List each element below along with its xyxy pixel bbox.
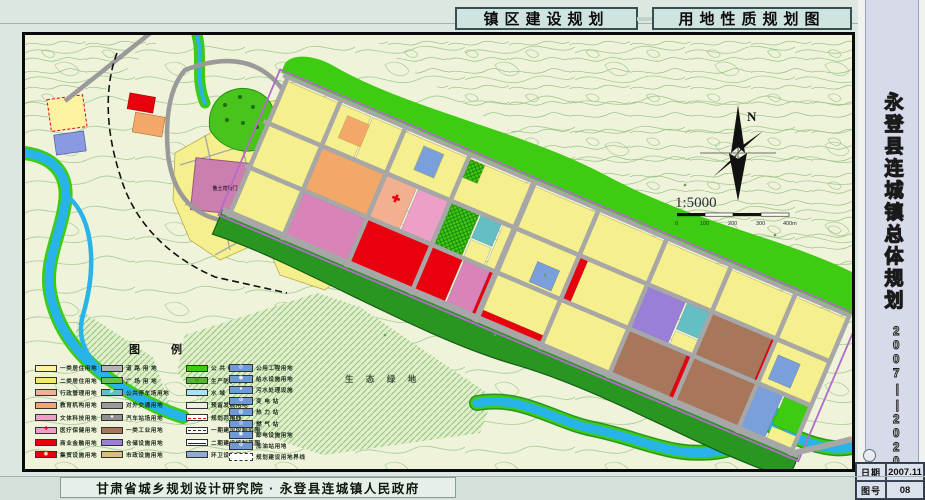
scale-tick: 300 bbox=[756, 221, 765, 227]
title-box-plan: 镇区建设规划 bbox=[455, 7, 638, 30]
legend-label: 热 力 站 bbox=[256, 408, 279, 416]
legend-label: 加油站用地 bbox=[256, 442, 287, 450]
legend-label: 公共停车场用地 bbox=[126, 389, 169, 397]
legend-item: ⊙加油站用地 bbox=[229, 440, 306, 451]
legend-swatch bbox=[35, 414, 57, 421]
legend-label: 仓储设施用地 bbox=[126, 439, 163, 447]
legend-swatch bbox=[101, 439, 123, 446]
legend-swatch: ◎ bbox=[186, 377, 208, 384]
legend-item: ◉集贸设施用地 bbox=[35, 449, 97, 461]
sheet-label: 图号 bbox=[856, 481, 886, 499]
legend-label: 燃 气 站 bbox=[256, 420, 279, 428]
legend-swatch: ● bbox=[229, 386, 253, 394]
legend-label: 邮电设施用地 bbox=[256, 431, 293, 439]
legend-item: ◎公用工程用地 bbox=[229, 362, 306, 373]
legend-item: 二类居住用地 bbox=[35, 374, 97, 386]
legend-swatch: ⊙ bbox=[229, 397, 253, 405]
legend-swatch bbox=[186, 402, 208, 409]
legend-label: 变 电 站 bbox=[256, 397, 279, 405]
legend-title: 图 例 bbox=[129, 341, 196, 357]
legend-label: 道 路 用 地 bbox=[126, 364, 157, 372]
legend-swatch bbox=[186, 427, 208, 434]
legend-swatch bbox=[186, 451, 208, 458]
legend-label: 教育机构用地 bbox=[60, 401, 97, 409]
sheet-value: 08 bbox=[886, 481, 924, 499]
legend-swatch bbox=[101, 427, 123, 434]
legend-label: 对外交通用地 bbox=[126, 401, 163, 409]
legend-item: 道 路 用 地 bbox=[101, 362, 169, 374]
legend-swatch: ◎ bbox=[229, 420, 253, 428]
info-table: 日期 2007.11 图号 08 bbox=[855, 462, 925, 500]
legend-item: 教育机构用地 bbox=[35, 399, 97, 411]
legend-label: 广 场 用 地 bbox=[126, 377, 157, 385]
legend-item: ✚医疗保健用地 bbox=[35, 424, 97, 436]
legend-item: 对外交通用地 bbox=[101, 399, 169, 411]
legend-item: 一类居住用地 bbox=[35, 362, 97, 374]
sidebar-band: 永登县连城镇总体规划 2007∣∣2020 bbox=[865, 0, 919, 462]
heritage-label: 鲁土司衙门 bbox=[212, 185, 237, 192]
legend-swatch: ✚ bbox=[35, 427, 57, 434]
scale-tick: 400m bbox=[783, 221, 797, 227]
sidebar: 永登县连城镇总体规划 2007∣∣2020 bbox=[858, 0, 925, 462]
legend-item: ◉邮电设施用地 bbox=[229, 429, 306, 440]
legend-swatch bbox=[35, 439, 57, 446]
footer-strip: 甘肃省城乡规划设计研究院 · 永登县连城镇人民政府 bbox=[0, 477, 855, 500]
legend-swatch bbox=[101, 402, 123, 409]
legend-label: 二类居住用地 bbox=[60, 377, 97, 385]
legend-swatch: ◉ bbox=[229, 431, 253, 439]
legend-label: 汽车站场用地 bbox=[126, 414, 163, 422]
legend-item: 商业金融用地 bbox=[35, 436, 97, 448]
legend-swatch bbox=[186, 365, 208, 372]
title-connector bbox=[637, 17, 653, 21]
legend-item: ●污水处理设施 bbox=[229, 384, 306, 395]
legend-swatch: ◉ bbox=[229, 375, 253, 383]
legend-column-1: 一类居住用地二类居住用地行政管理用地教育机构用地文体科技用地✚医疗保健用地商业金… bbox=[35, 362, 97, 461]
legend-item: 文体科技用地 bbox=[35, 412, 97, 424]
credit-box: 甘肃省城乡规划设计研究院 · 永登县连城镇人民政府 bbox=[60, 477, 456, 498]
scale-tick: 0 bbox=[675, 221, 678, 227]
legend-item: P公共停车场用地 bbox=[101, 387, 169, 399]
legend-swatch bbox=[101, 365, 123, 372]
map-canvas: 鲁土司衙门 bbox=[22, 32, 855, 472]
legend-item: ⊙变 电 站 bbox=[229, 396, 306, 407]
legend-item: 行政管理用地 bbox=[35, 387, 97, 399]
legend-swatch bbox=[186, 389, 208, 396]
legend-label: 公用工程用地 bbox=[256, 364, 293, 372]
legend-label: 行政管理用地 bbox=[60, 389, 97, 397]
legend-label: 医疗保健用地 bbox=[60, 426, 97, 434]
legend-label: 一类工业用地 bbox=[126, 426, 163, 434]
date-value: 2007.11 bbox=[886, 463, 924, 481]
legend-swatch: ● bbox=[101, 414, 123, 421]
legend-swatch: P bbox=[101, 389, 123, 396]
legend-swatch: ◉ bbox=[35, 451, 57, 458]
legend-swatch bbox=[229, 453, 253, 461]
title-box-landuse: 用地性质规划图 bbox=[652, 7, 852, 30]
map-legend: 图 例 一类居住用地二类居住用地行政管理用地教育机构用地文体科技用地✚医疗保健用… bbox=[33, 341, 351, 467]
legend-label: 水 域 bbox=[211, 389, 226, 397]
legend-swatch bbox=[101, 451, 123, 458]
legend-swatch bbox=[35, 365, 57, 372]
legend-label: 规划建设用地界线 bbox=[256, 453, 306, 461]
legend-column-2: 道 路 用 地广 场 用 地P公共停车场用地对外交通用地●汽车站场用地一类工业用… bbox=[101, 362, 169, 461]
legend-label: 市政设施用地 bbox=[126, 451, 163, 459]
scale-ratio-label: 1:5000 bbox=[675, 195, 717, 211]
stream-north bbox=[197, 35, 205, 103]
legend-label: 文体科技用地 bbox=[60, 414, 97, 422]
plan-period-vertical: 2007∣∣2020 bbox=[889, 326, 903, 470]
legend-swatch bbox=[35, 377, 57, 384]
legend-label: 集贸设施用地 bbox=[60, 451, 97, 459]
legend-label: 商业金融用地 bbox=[60, 439, 97, 447]
legend-swatch: ⊙ bbox=[229, 442, 253, 450]
legend-column-4: ◎公用工程用地◉给水设施用地●污水处理设施⊙变 电 站◍热 力 站◎燃 气 站◉… bbox=[229, 362, 306, 463]
legend-item: ◉给水设施用地 bbox=[229, 373, 306, 384]
legend-item: ◎燃 气 站 bbox=[229, 418, 306, 429]
seal-icon bbox=[863, 449, 876, 462]
date-label: 日期 bbox=[856, 463, 886, 481]
legend-label: 给水设施用地 bbox=[256, 375, 293, 383]
plan-title-vertical: 永登县连城镇总体规划 bbox=[879, 92, 906, 312]
scale-tick: 100 bbox=[700, 221, 709, 227]
legend-swatch: ◍ bbox=[229, 408, 253, 416]
legend-item: 规划建设用地界线 bbox=[229, 452, 306, 463]
legend-swatch bbox=[35, 402, 57, 409]
legend-item: 一类工业用地 bbox=[101, 424, 169, 436]
legend-item: ●汽车站场用地 bbox=[101, 412, 169, 424]
legend-item: 广 场 用 地 bbox=[101, 374, 169, 386]
legend-item: 仓储设施用地 bbox=[101, 436, 169, 448]
legend-item: ◍热 力 站 bbox=[229, 407, 306, 418]
legend-item: 市政设施用地 bbox=[101, 449, 169, 461]
legend-swatch bbox=[186, 439, 208, 446]
legend-swatch bbox=[35, 389, 57, 396]
compass-north-label: N bbox=[747, 109, 757, 124]
legend-label: 污水处理设施 bbox=[256, 386, 293, 394]
legend-label: 一类居住用地 bbox=[60, 364, 97, 372]
legend-swatch: ◎ bbox=[229, 364, 253, 372]
scale-tick: 200 bbox=[728, 221, 737, 227]
legend-swatch bbox=[186, 414, 208, 421]
legend-swatch bbox=[101, 377, 123, 384]
eco-green-label: 生 态 绿 地 bbox=[345, 374, 421, 384]
